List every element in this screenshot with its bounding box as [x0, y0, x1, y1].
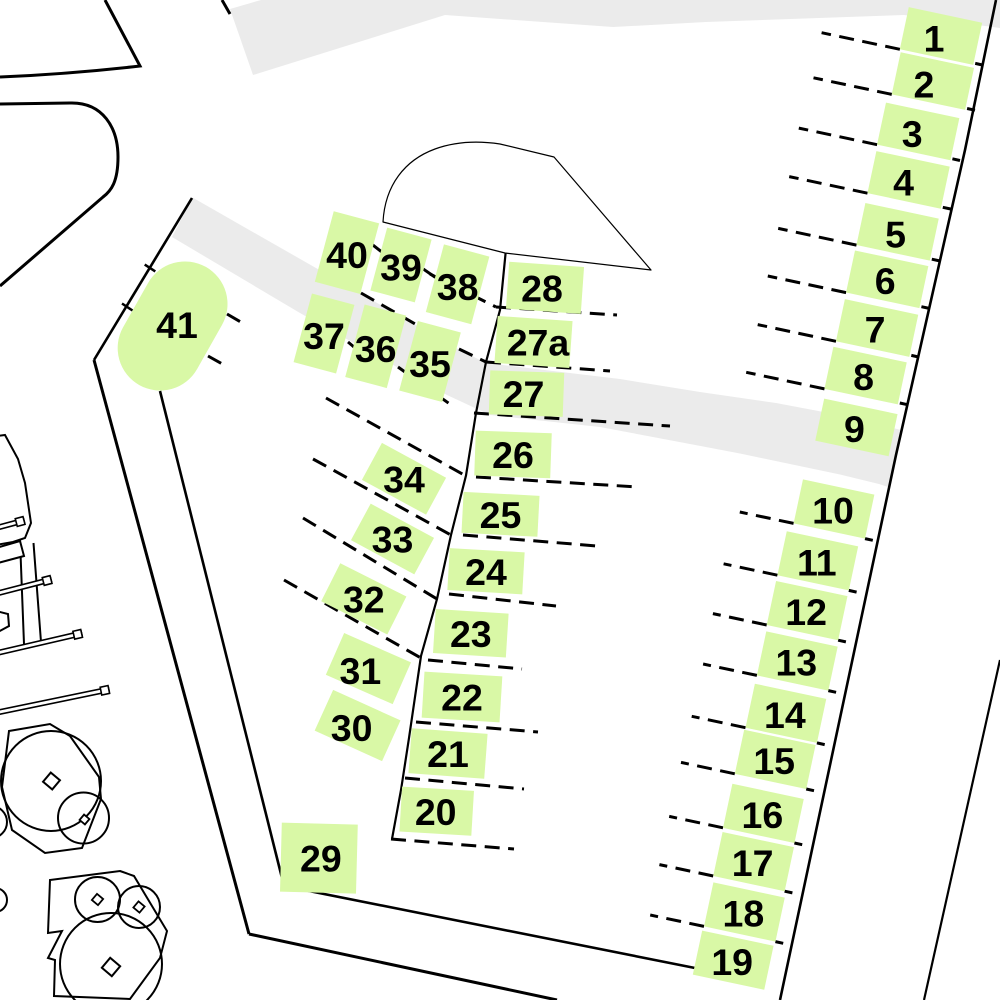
svg-text:4: 4	[893, 162, 914, 204]
svg-text:17: 17	[732, 842, 774, 884]
svg-text:39: 39	[380, 247, 422, 289]
svg-text:8: 8	[853, 356, 874, 398]
svg-text:2: 2	[913, 64, 934, 106]
svg-text:12: 12	[785, 591, 827, 633]
svg-text:21: 21	[427, 733, 469, 775]
svg-text:11: 11	[797, 541, 837, 583]
svg-text:7: 7	[865, 309, 886, 351]
svg-text:32: 32	[343, 579, 385, 621]
svg-text:24: 24	[465, 551, 507, 593]
svg-text:10: 10	[812, 490, 854, 532]
svg-text:28: 28	[521, 267, 563, 309]
svg-text:22: 22	[441, 677, 483, 719]
svg-text:5: 5	[885, 213, 906, 255]
svg-text:27: 27	[503, 373, 545, 415]
svg-text:33: 33	[372, 519, 414, 561]
svg-text:36: 36	[355, 328, 397, 370]
svg-text:29: 29	[300, 838, 342, 880]
svg-text:26: 26	[492, 434, 534, 476]
svg-text:23: 23	[450, 613, 492, 655]
svg-text:9: 9	[844, 408, 865, 450]
svg-text:19: 19	[711, 941, 753, 983]
svg-text:27a: 27a	[507, 322, 571, 364]
svg-text:15: 15	[753, 740, 795, 782]
svg-text:35: 35	[409, 343, 451, 385]
svg-text:25: 25	[480, 494, 522, 536]
svg-text:38: 38	[437, 266, 479, 308]
svg-text:41: 41	[156, 304, 198, 346]
svg-text:13: 13	[775, 642, 817, 684]
svg-text:20: 20	[415, 791, 457, 833]
svg-text:40: 40	[326, 234, 368, 276]
svg-text:16: 16	[742, 794, 784, 836]
svg-text:30: 30	[331, 707, 373, 749]
svg-text:34: 34	[383, 458, 425, 500]
svg-text:14: 14	[764, 694, 806, 736]
svg-text:37: 37	[303, 315, 345, 357]
svg-text:6: 6	[875, 260, 896, 302]
svg-text:31: 31	[340, 650, 382, 692]
svg-text:3: 3	[902, 113, 923, 155]
svg-text:18: 18	[723, 893, 765, 935]
svg-text:1: 1	[924, 18, 945, 60]
